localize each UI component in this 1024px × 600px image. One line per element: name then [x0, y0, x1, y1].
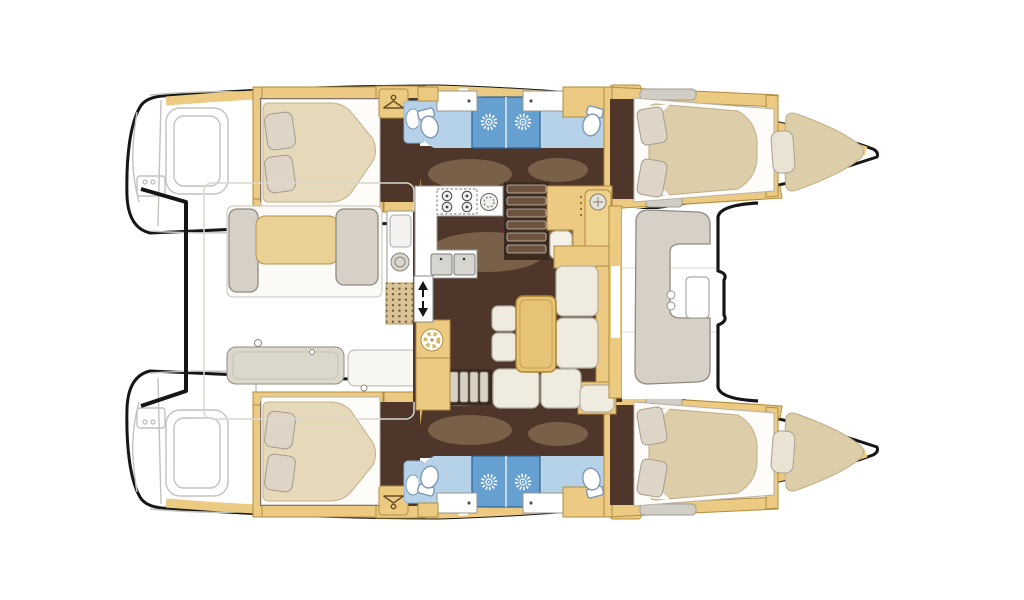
cup-holder: [667, 291, 675, 299]
fan-cabinet: [416, 320, 450, 410]
stair-step: [507, 209, 546, 217]
settee-cushion: [556, 266, 598, 316]
cup-holder: [667, 302, 675, 310]
stair-step: [507, 197, 546, 205]
fan-hub: [431, 339, 434, 342]
engine-hatch-grid: [386, 283, 413, 324]
stair-step: [470, 372, 478, 402]
sliding-entry-door: [414, 276, 433, 322]
door-arrow-stem: [422, 301, 424, 308]
saloon-table: [516, 296, 556, 372]
deck-filler-cap: [310, 350, 315, 355]
forward-table: [686, 277, 709, 318]
stair-step: [460, 372, 468, 402]
cockpit-seat: [348, 350, 418, 386]
settee-cushion: [492, 306, 517, 331]
hinge-dot: [580, 208, 582, 210]
door-arrow-stem: [422, 290, 424, 297]
settee-cushion: [493, 369, 539, 408]
burner-dot: [466, 206, 469, 209]
floorplan-canvas: [0, 0, 1024, 600]
bench-cushion: [256, 216, 338, 264]
stair-step: [507, 185, 546, 193]
forward-beam-line: [718, 203, 758, 401]
stair-step: [507, 245, 546, 253]
icebox: [390, 215, 411, 247]
catamaran-floorplan: [0, 0, 1024, 600]
cockpit-table: [227, 347, 344, 384]
bench-backrest: [229, 209, 258, 292]
cockpit-sink: [391, 253, 409, 271]
burner-dot: [446, 206, 449, 209]
settee-cushion: [541, 369, 581, 408]
burner-dot: [466, 195, 469, 198]
deck-filler-cap: [361, 385, 367, 391]
stair-step: [480, 372, 488, 402]
sink-drain: [463, 258, 466, 261]
galley-sink: [431, 254, 452, 275]
forward-cockpit: [622, 203, 758, 401]
round-burner: [481, 194, 498, 211]
stairs-to-port-hull: [504, 182, 549, 260]
burner-dot: [446, 195, 449, 198]
stair-step: [507, 221, 546, 229]
settee-frame: [554, 246, 616, 268]
settee-cushion: [492, 333, 517, 361]
stairs-to-starboard-hull: [446, 369, 492, 405]
galley-sink: [454, 254, 475, 275]
bench-backrest: [336, 209, 378, 285]
stair-step: [507, 233, 546, 241]
hinge-dot: [580, 214, 582, 216]
stair-step: [450, 372, 458, 402]
settee-cushion: [556, 318, 598, 368]
bulkhead-window: [611, 266, 620, 338]
saloon: [413, 182, 622, 414]
hinge-dot: [580, 196, 582, 198]
sink-drain: [440, 258, 443, 261]
deck-filler-cap: [255, 340, 262, 347]
hinge-dot: [580, 202, 582, 204]
